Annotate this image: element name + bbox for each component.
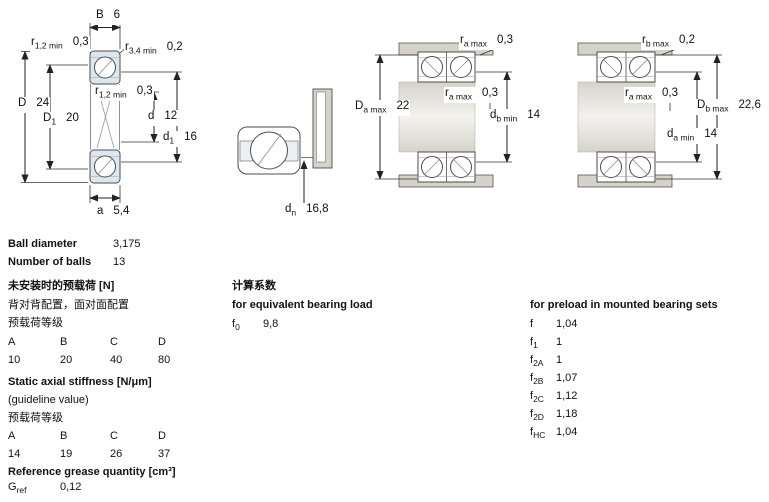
dim-value: 5,4: [113, 205, 129, 217]
dim-symbol: D1: [43, 112, 56, 124]
preload-value: 20: [60, 354, 72, 367]
dim-value: 0,3: [662, 87, 678, 99]
dim-D1: D120: [42, 112, 80, 128]
dim-symbol: Da max: [355, 100, 386, 112]
preload-value: 10: [8, 354, 20, 367]
grade-header: C: [110, 336, 118, 349]
dim-symbol: r1,2 min: [31, 36, 63, 48]
dim-symbol: D: [18, 97, 26, 109]
grease-quantity-title: Reference grease quantity [cm³]: [8, 466, 176, 479]
preload-value: 40: [110, 354, 122, 367]
equivalent-load-title: for equivalent bearing load: [232, 299, 373, 312]
stiffness-value: 14: [8, 448, 20, 461]
dim-symbol: B: [96, 9, 104, 21]
dim-symbol: Db max: [697, 99, 728, 111]
factor-symbol: f1: [530, 336, 538, 352]
dim-dn: dn16,8: [284, 203, 330, 219]
dim-value: 0,2: [679, 34, 695, 46]
factor-value: 9,8: [263, 318, 278, 331]
bearing-datasheet-page: B6 r1,2 min0,3 r3,4 min0,2 D24 D120 r1,2…: [0, 0, 769, 502]
dim-value: 22,6: [738, 99, 760, 111]
stiffness-note: (guideline value): [8, 394, 89, 407]
dim-symbol: db min: [490, 109, 517, 121]
factor-symbol: f2A: [530, 354, 543, 370]
dim-symbol: ra max: [460, 34, 487, 46]
dim-symbol: r1,2 min: [95, 85, 127, 97]
factor-value: 1: [556, 336, 562, 349]
dim-db-min: db min14: [489, 109, 541, 125]
dim-Db-max: Db max22,6: [696, 99, 762, 115]
factor-value: 1,04: [556, 426, 577, 439]
factor-symbol: f2D: [530, 408, 544, 424]
stiffness-value: 19: [60, 448, 72, 461]
factor-value: 1,04: [556, 318, 577, 331]
grade-header: A: [8, 430, 15, 443]
dim-value: 0,3: [482, 87, 498, 99]
factor-symbol: f: [530, 318, 533, 334]
dim-value: 24: [36, 97, 49, 109]
grade-header: D: [158, 336, 166, 349]
dim-symbol: ra max: [625, 87, 652, 99]
drawing-front-view: [238, 89, 332, 207]
dim-a: a5,4: [96, 205, 130, 221]
dim-symbol: ra max: [445, 87, 472, 99]
dim-value: 0,3: [73, 36, 89, 48]
dim-value: 16,8: [306, 203, 328, 215]
grease-value: 0,12: [60, 481, 81, 494]
dim-symbol: da min: [667, 128, 694, 140]
grade-header: B: [60, 430, 67, 443]
preload-value: 80: [158, 354, 170, 367]
dim-value: 0,2: [167, 41, 183, 53]
dim-ra-max-top-a: ra max0,3: [459, 34, 514, 50]
grade-header: B: [60, 336, 67, 349]
preload-grade-label: 预载荷等级: [8, 317, 63, 330]
dim-value: 0,3: [137, 85, 153, 97]
dim-r12-top: r1,2 min0,3: [30, 36, 90, 52]
stiffness-grade-label: 预载荷等级: [8, 412, 63, 425]
dim-symbol: rb max: [642, 34, 669, 46]
dim-value: 14: [527, 109, 540, 121]
dim-bore-d: d12: [147, 110, 178, 126]
stiffness-title: Static axial stiffness [N/μm]: [8, 376, 152, 389]
dim-r12-mid: r1,2 min0,3: [94, 85, 154, 101]
factor-symbol: fHC: [530, 426, 545, 442]
dim-symbol: dn: [285, 203, 296, 215]
factor-value: 1,18: [556, 408, 577, 421]
number-of-balls-value: 13: [113, 256, 125, 269]
dim-value: 22: [396, 100, 409, 112]
dim-value: 16: [184, 131, 197, 143]
grade-header: C: [110, 430, 118, 443]
factor-value: 1,07: [556, 372, 577, 385]
dim-d1: d116: [162, 131, 198, 147]
dim-ra-max-mid-b: ra max0,3: [624, 87, 679, 103]
dim-ra-max-mid-a: ra max0,3: [444, 87, 499, 103]
dim-symbol: d1: [163, 131, 174, 143]
dim-width-B: B6: [95, 9, 121, 25]
dim-rb-max-top-b: rb max0,2: [641, 34, 696, 50]
calculation-factors-title: 计算系数: [232, 280, 276, 293]
factor-value: 1,12: [556, 390, 577, 403]
grease-symbol: Gref: [8, 481, 26, 497]
factor-symbol: f0: [232, 318, 240, 334]
preload-arrangement-note: 背对背配置，面对面配置: [8, 299, 129, 312]
dim-symbol: d: [148, 110, 154, 122]
factor-value: 1: [556, 354, 562, 367]
ball-diameter-value: 3,175: [113, 238, 141, 251]
dim-outer-diameter-D: D24: [17, 97, 50, 113]
grade-header: D: [158, 430, 166, 443]
dim-value: 12: [164, 110, 177, 122]
dim-symbol: a: [97, 205, 103, 217]
stiffness-value: 26: [110, 448, 122, 461]
dim-value: 6: [114, 9, 120, 21]
factor-symbol: f2C: [530, 390, 544, 406]
preload-unmounted-title: 未安装时的预载荷 [N]: [8, 280, 114, 293]
ball-diameter-label: Ball diameter: [8, 238, 77, 251]
dim-value: 0,3: [497, 34, 513, 46]
grade-header: A: [8, 336, 15, 349]
number-of-balls-label: Number of balls: [8, 256, 91, 269]
dim-da-min: da min14: [666, 128, 718, 144]
dim-symbol: r3,4 min: [125, 41, 157, 53]
dim-value: 14: [704, 128, 717, 140]
dim-Da-max: Da max22: [354, 100, 410, 116]
dim-value: 20: [66, 112, 79, 124]
factor-symbol: f2B: [530, 372, 543, 388]
preload-sets-title: for preload in mounted bearing sets: [530, 299, 718, 312]
dim-r34-top: r3,4 min0,2: [124, 41, 184, 57]
stiffness-value: 37: [158, 448, 170, 461]
